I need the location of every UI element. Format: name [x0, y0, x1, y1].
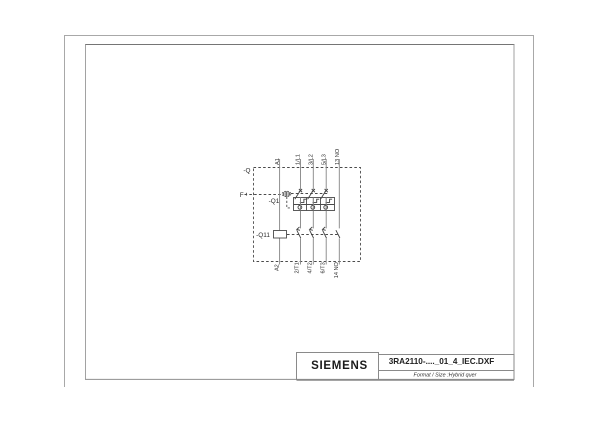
svg-text:SIEMENS: SIEMENS [311, 360, 368, 372]
svg-text:F: F [240, 192, 244, 199]
svg-text:-Q11: -Q11 [256, 232, 270, 239]
svg-text:6/T3: 6/T3 [320, 262, 326, 273]
svg-text:3RA2110-...._01_4_IEC.DXF: 3RA2110-...._01_4_IEC.DXF [389, 357, 495, 366]
svg-text:A1: A1 [275, 158, 281, 165]
svg-text:Format / Size :Hybrid quer: Format / Size :Hybrid quer [414, 373, 477, 379]
svg-text:-Q: -Q [243, 167, 250, 174]
svg-text:A2: A2 [275, 264, 281, 271]
svg-text:2/T1: 2/T1 [295, 262, 301, 273]
svg-text:-Q1: -Q1 [269, 198, 280, 205]
svg-text:13 NO: 13 NO [335, 148, 341, 165]
svg-text:4/T2: 4/T2 [308, 262, 314, 273]
